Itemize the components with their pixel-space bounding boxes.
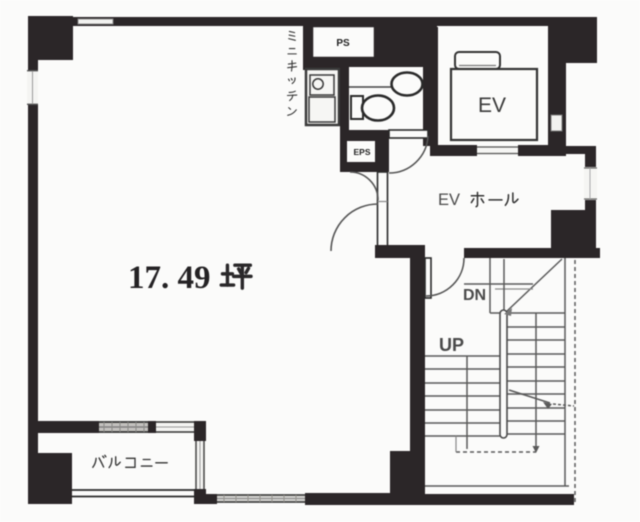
svg-text:EV: EV <box>478 94 506 117</box>
svg-text:PS: PS <box>336 38 350 49</box>
svg-text:EV: EV <box>438 191 460 209</box>
svg-text:17. 49: 17. 49 <box>128 260 211 296</box>
svg-text:UP: UP <box>439 335 464 355</box>
svg-text:DN: DN <box>463 287 486 304</box>
svg-text:EPS: EPS <box>353 147 370 157</box>
